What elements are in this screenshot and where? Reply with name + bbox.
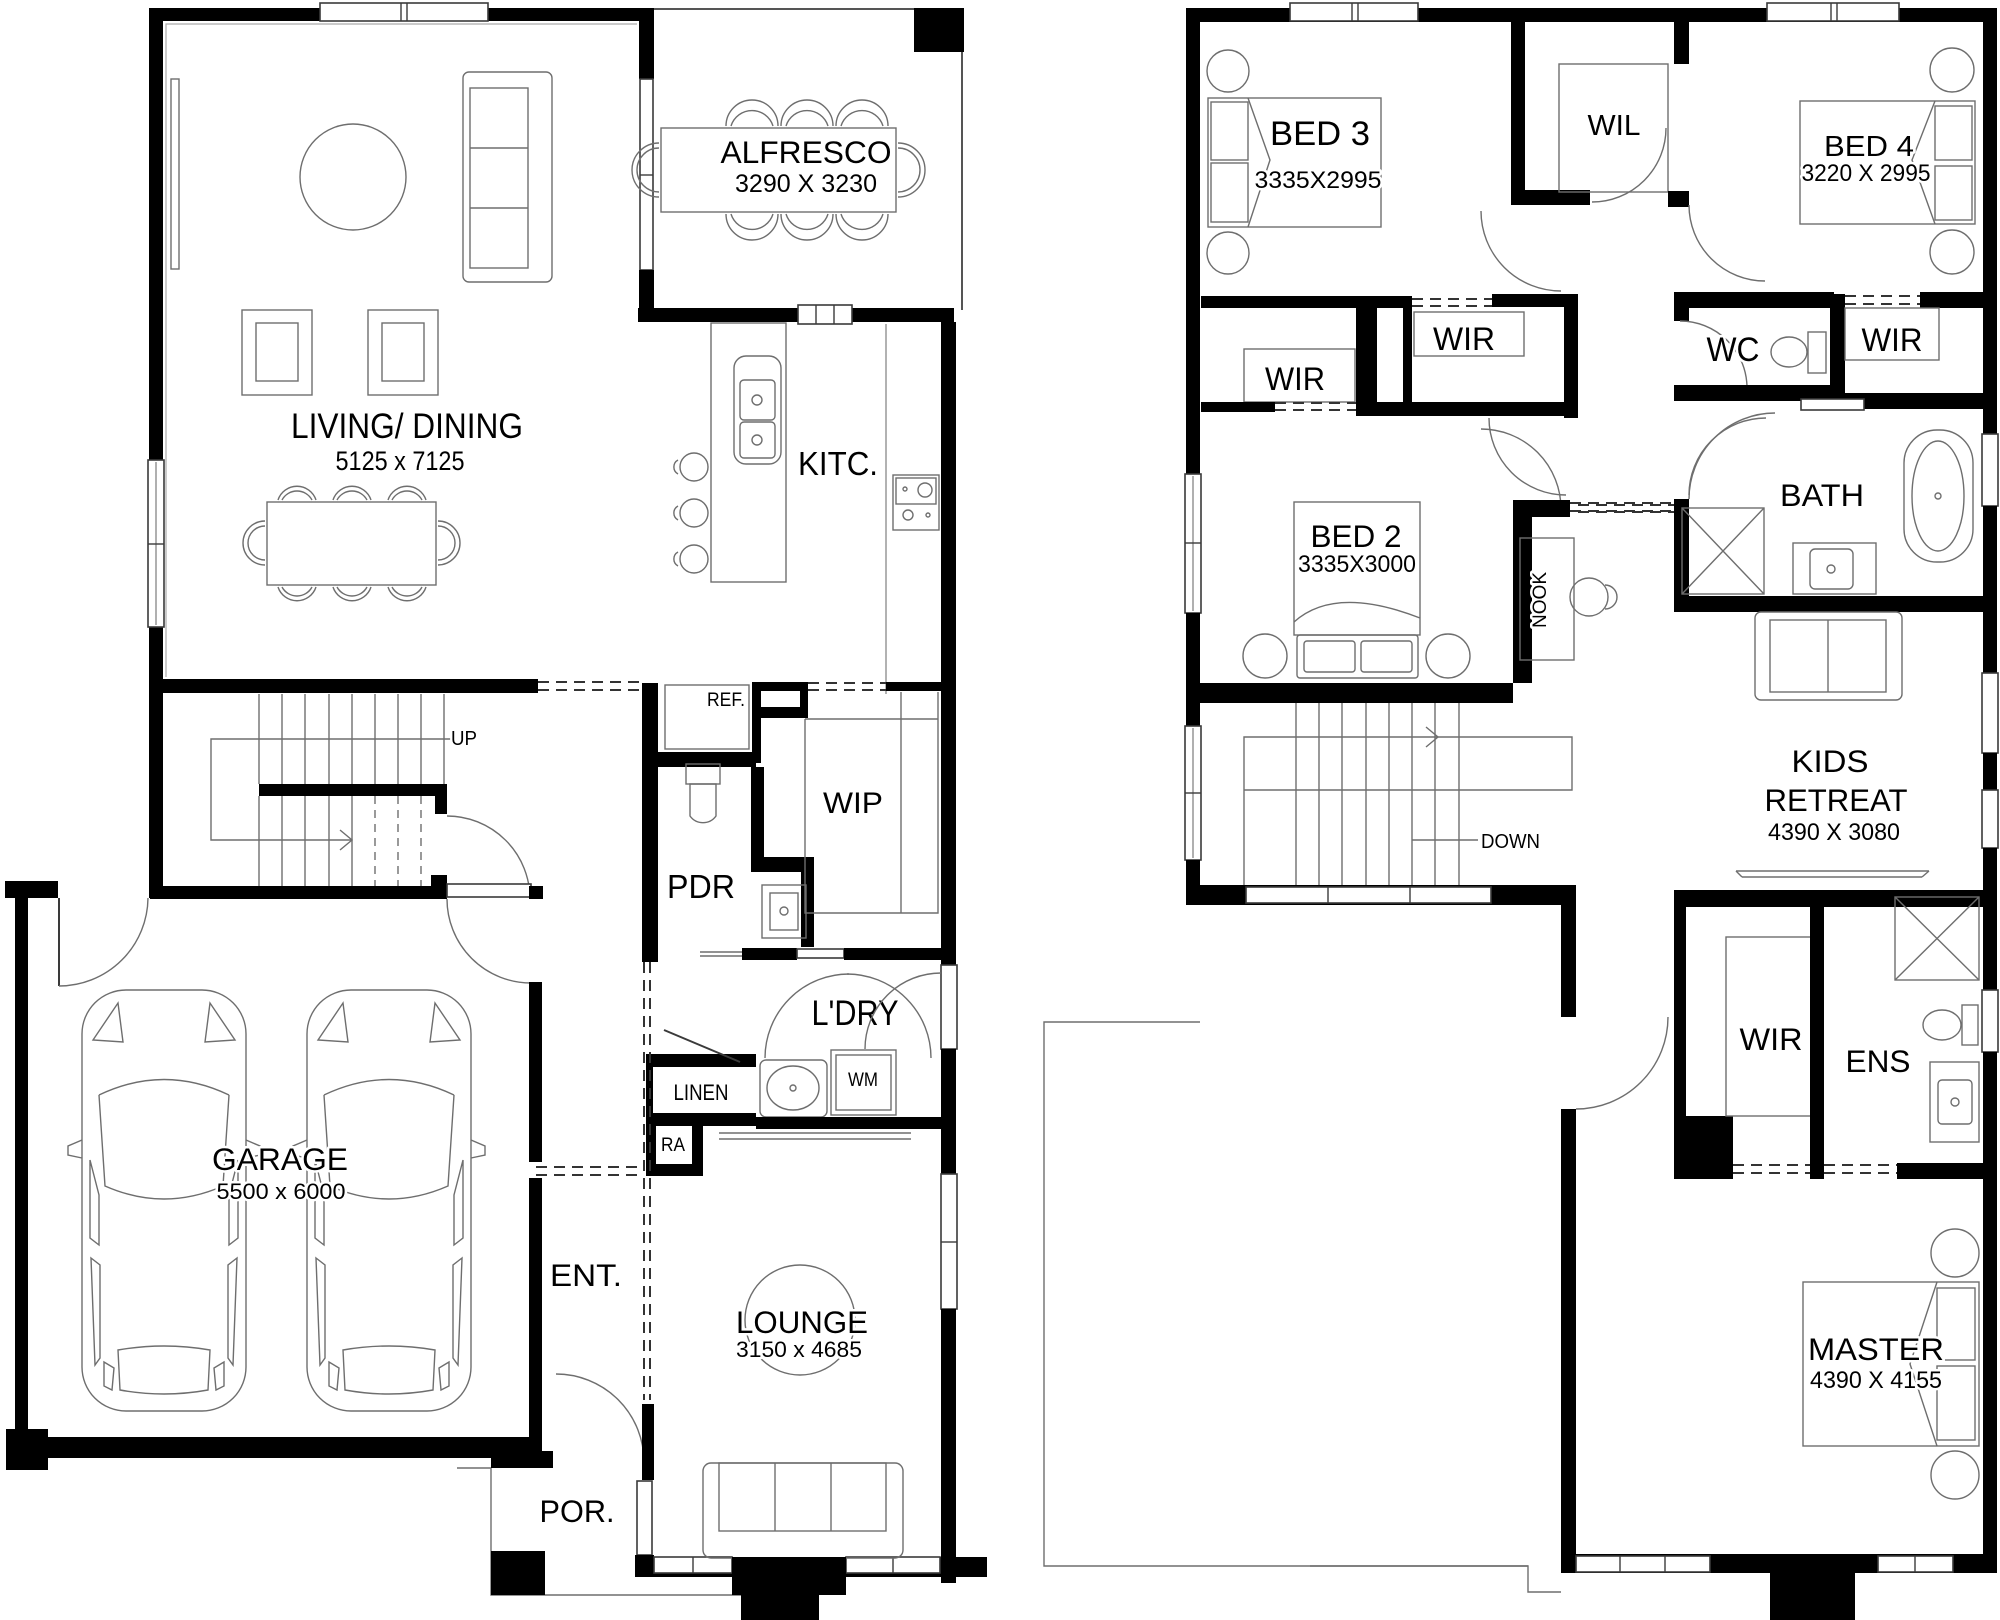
svg-text:BATH: BATH [1780,477,1864,513]
svg-text:WIR: WIR [1433,321,1495,357]
svg-text:BED 2: BED 2 [1311,518,1402,554]
svg-text:WIR: WIR [1862,322,1923,358]
svg-text:GARAGE: GARAGE [212,1141,348,1177]
svg-text:UP: UP [451,728,477,750]
svg-text:WIR: WIR [1265,361,1325,397]
svg-text:WIP: WIP [823,787,883,820]
svg-text:3335X2995: 3335X2995 [1255,167,1382,194]
svg-text:PDR: PDR [667,868,735,905]
svg-text:KITC.: KITC. [798,445,878,482]
svg-text:KIDS: KIDS [1792,743,1869,779]
svg-text:3290 X 3230: 3290 X 3230 [735,170,877,198]
svg-text:ENT.: ENT. [550,1257,622,1293]
svg-text:ALFRESCO: ALFRESCO [721,134,892,170]
svg-text:3335X3000: 3335X3000 [1298,551,1416,578]
svg-text:L'DRY: L'DRY [812,994,899,1033]
svg-text:3150 x 4685: 3150 x 4685 [736,1337,862,1362]
svg-text:5125 x 7125: 5125 x 7125 [336,446,465,476]
svg-text:WIR: WIR [1740,1021,1803,1057]
svg-text:WIL: WIL [1588,110,1641,142]
svg-text:ENS: ENS [1846,1043,1911,1079]
svg-text:RETREAT: RETREAT [1765,782,1908,818]
svg-text:LOUNGE: LOUNGE [736,1304,868,1340]
svg-text:NOOK: NOOK [1530,572,1551,628]
svg-text:DOWN: DOWN [1481,831,1540,853]
svg-text:4390 X 4155: 4390 X 4155 [1810,1367,1942,1394]
svg-text:RA: RA [661,1135,685,1156]
svg-text:MASTER: MASTER [1808,1331,1944,1367]
svg-text:LIVING/ DINING: LIVING/ DINING [291,407,523,446]
svg-text:WM: WM [848,1070,878,1091]
svg-text:5500 x 6000: 5500 x 6000 [217,1179,346,1204]
svg-text:4390 X 3080: 4390 X 3080 [1768,819,1900,846]
svg-text:BED 4: BED 4 [1824,131,1914,163]
svg-text:BED 3: BED 3 [1270,115,1370,153]
svg-text:LINEN: LINEN [674,1080,729,1105]
svg-text:REF.: REF. [707,690,745,711]
svg-text:POR.: POR. [540,1493,615,1529]
svg-text:WC: WC [1707,331,1760,369]
svg-text:3220 X 2995: 3220 X 2995 [1802,160,1931,187]
